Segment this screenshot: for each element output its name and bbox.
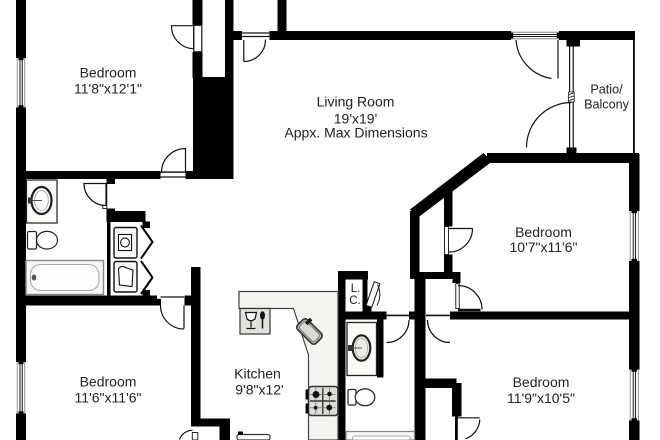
svg-text:Bedroom: Bedroom	[513, 374, 570, 390]
svg-text:Appx. Max Dimensions: Appx. Max Dimensions	[284, 125, 427, 141]
svg-text:Bedroom: Bedroom	[80, 65, 137, 81]
svg-text:11'9"x10'5": 11'9"x10'5"	[507, 390, 575, 406]
svg-text:11'8"x12'1": 11'8"x12'1"	[74, 81, 142, 97]
svg-text:Patio/: Patio/	[590, 83, 623, 97]
svg-text:Bedroom: Bedroom	[80, 374, 137, 390]
svg-text:Bedroom: Bedroom	[515, 224, 572, 240]
svg-text:9'8"x12': 9'8"x12'	[235, 382, 283, 398]
svg-text:C.: C.	[349, 295, 361, 307]
svg-text:10'7"x11'6": 10'7"x11'6"	[510, 239, 578, 255]
svg-text:11'6"x11'6": 11'6"x11'6"	[75, 390, 142, 406]
svg-text:Kitchen: Kitchen	[234, 366, 281, 382]
svg-text:Balcony: Balcony	[584, 98, 630, 112]
svg-text:L.: L.	[351, 283, 361, 295]
svg-text:Living Room: Living Room	[317, 94, 395, 110]
